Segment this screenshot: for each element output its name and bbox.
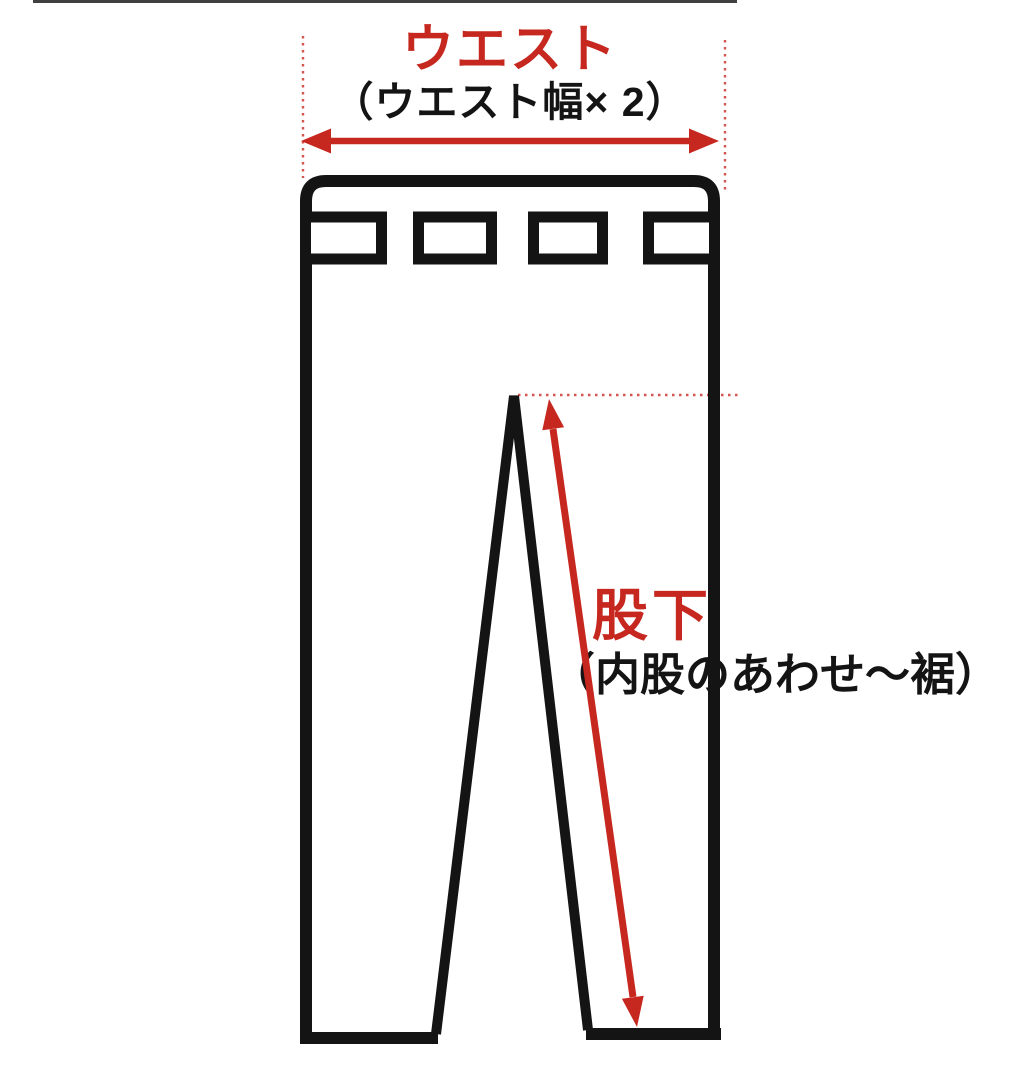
waist-arrow-right-head-icon xyxy=(689,129,719,154)
waist-arrow-left-head-icon xyxy=(301,129,331,154)
belt-loop-2 xyxy=(419,217,492,259)
belt-loop-4 xyxy=(649,217,715,259)
belt-loops xyxy=(306,217,715,259)
inseam-arrow-bottom-head-icon xyxy=(622,996,644,1027)
measurement-diagram: ウエスト （ウエスト幅× 2） 股下 （内股のあわせ〜裾） xyxy=(0,0,1010,1080)
inseam-arrow-shaft xyxy=(553,429,633,997)
pants-outline xyxy=(300,181,721,1040)
belt-loop-3 xyxy=(534,217,603,259)
belt-loop-1 xyxy=(306,217,382,259)
inseam-dimension-arrow xyxy=(542,399,643,1027)
pants-outer-outline xyxy=(306,181,714,1040)
inseam-arrow-top-head-icon xyxy=(542,399,564,430)
waist-dimension-arrow xyxy=(301,129,719,154)
pants-diagram-svg xyxy=(0,0,1010,1080)
